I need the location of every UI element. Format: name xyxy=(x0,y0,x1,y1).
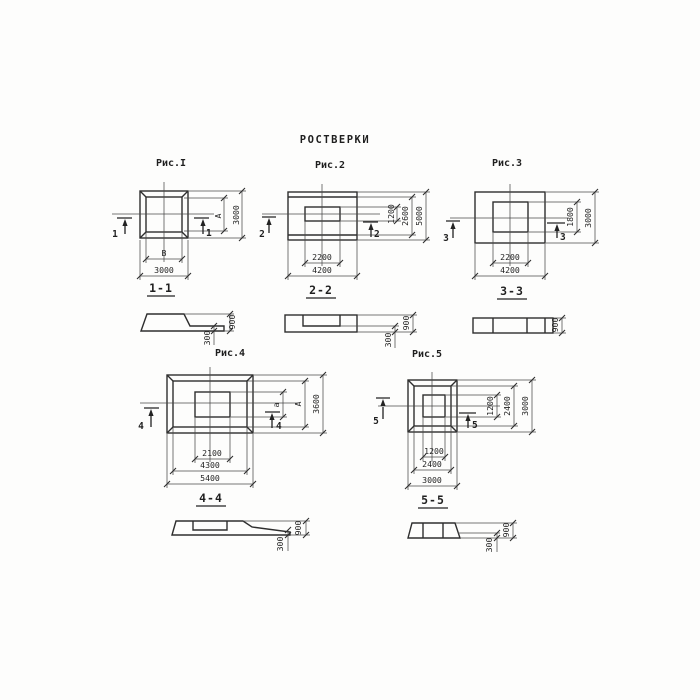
fig5-section-view: 900 300 xyxy=(408,520,517,552)
fig3-dim-inner-width: 2200 xyxy=(500,252,520,262)
fig4-dim-mid-height: A xyxy=(293,401,303,406)
fig5-cut-label-left: 5 xyxy=(373,416,379,427)
fig5-dim-inner-height: 1200 xyxy=(485,396,495,416)
fig1-dim-outer-width: 3000 xyxy=(154,265,174,275)
fig3-plan-dimensions: 1800 3000 2200 4200 xyxy=(500,207,593,275)
fig1-cut-label-inner: 1 xyxy=(206,228,212,239)
figure-4: Рис.4 4 4 a A 3600 2100 4300 5400 4-4 xyxy=(138,348,327,551)
fig2-dim-inner-height: 1200 xyxy=(386,204,396,224)
fig1-dim-outer-height: 3000 xyxy=(231,205,241,225)
fig5-dim-mid-height: 2400 xyxy=(502,396,512,416)
fig4-plan-linework xyxy=(140,367,327,488)
fig2-section-view: 900 300 xyxy=(285,312,417,348)
fig2-dim-outer-width: 4200 xyxy=(312,265,332,275)
fig3-dim-outer-width: 4200 xyxy=(500,265,520,275)
fig2-cut-label-left: 2 xyxy=(259,229,265,240)
fig2-section-label: 2-2 xyxy=(309,283,333,297)
fig1-plan-linework xyxy=(112,182,246,280)
fig1-caption: Рис.I xyxy=(156,158,186,169)
fig1-section-ledge: 300 xyxy=(202,331,212,346)
fig4-dim-outer-height: 3600 xyxy=(311,394,321,414)
fig3-caption: Рис.3 xyxy=(492,158,522,169)
sheet-title: РОСТВЕРКИ xyxy=(300,134,370,146)
fig4-dim-outer-width: 5400 xyxy=(200,473,220,483)
fig3-cut-label-left: 3 xyxy=(443,233,449,244)
fig4-section-label: 4-4 xyxy=(199,491,223,505)
fig2-cut-label-inner: 2 xyxy=(374,229,380,240)
fig1-section-label: 1-1 xyxy=(149,281,173,295)
fig4-dim-mid-width: 4300 xyxy=(200,460,220,470)
fig5-plan-linework xyxy=(378,372,536,490)
fig1-cut-marks: 1 1 xyxy=(112,218,212,240)
fig2-dim-outer-height: 5000 xyxy=(414,206,424,226)
fig1-cut-label-left: 1 xyxy=(112,229,118,240)
figure-3: Рис.3 3 3 1800 3000 2200 4200 3-3 xyxy=(443,158,599,336)
fig5-caption: Рис.5 xyxy=(412,349,442,360)
fig1-dim-inner-width: B xyxy=(162,248,167,258)
fig4-dim-inner-width: 2100 xyxy=(202,448,222,458)
fig1-dim-inner-height: A xyxy=(213,213,223,218)
fig5-section-label: 5-5 xyxy=(421,493,445,507)
fig5-cut-label-inner: 5 xyxy=(472,420,478,431)
fig2-dim-mid-height: 2600 xyxy=(400,206,410,226)
fig2-section-ledge: 300 xyxy=(383,333,393,348)
fig5-dim-mid-width: 2400 xyxy=(422,459,442,469)
fig2-caption: Рис.2 xyxy=(315,160,345,171)
fig5-section-height: 900 xyxy=(501,523,511,538)
grillage-drawing: РОСТВЕРКИ Рис.I 1 1 A 3000 B 3000 1-1 xyxy=(0,0,700,700)
fig1-section-view: 900 300 xyxy=(141,311,237,345)
figure-5: Рис.5 5 5 1200 2400 3000 1200 2400 3000 … xyxy=(373,349,536,552)
figure-2: Рис.2 2 2 1200 2600 5000 2200 4200 2-2 xyxy=(259,160,430,348)
fig2-section-height: 900 xyxy=(401,316,411,331)
fig4-caption: Рис.4 xyxy=(215,348,245,359)
fig4-section-view: 900 300 xyxy=(172,518,310,551)
fig4-cut-label-inner: 4 xyxy=(276,421,282,432)
fig4-dim-inner-height: a xyxy=(271,402,281,407)
fig3-section-view: 900 xyxy=(473,315,566,336)
fig2-plan-linework xyxy=(262,184,430,280)
fig2-dim-inner-width: 2200 xyxy=(312,252,332,262)
drawing-sheet: РОСТВЕРКИ Рис.I 1 1 A 3000 B 3000 1-1 xyxy=(0,0,700,700)
fig3-plan-linework xyxy=(450,184,599,280)
fig5-dim-outer-height: 3000 xyxy=(520,396,530,416)
fig3-section-label: 3-3 xyxy=(500,284,524,298)
fig4-plan-dimensions: a A 3600 2100 4300 5400 xyxy=(200,394,321,483)
fig5-dim-outer-width: 3000 xyxy=(422,475,442,485)
fig4-section-ledge: 300 xyxy=(275,537,285,552)
fig1-plan-dimensions: A 3000 B 3000 xyxy=(154,205,241,275)
fig5-dim-inner-width: 1200 xyxy=(424,446,444,456)
fig3-dim-outer-height: 3000 xyxy=(583,208,593,228)
figure-1: Рис.I 1 1 A 3000 B 3000 1-1 90 xyxy=(112,158,246,345)
fig3-dim-inner-height: 1800 xyxy=(565,207,575,227)
fig5-section-ledge: 300 xyxy=(484,538,494,553)
fig3-cut-label-inner: 3 xyxy=(560,232,566,243)
fig4-section-height: 900 xyxy=(293,521,303,536)
fig4-cut-label-left: 4 xyxy=(138,421,144,432)
fig1-section-height: 900 xyxy=(227,315,237,330)
fig3-section-height: 900 xyxy=(550,318,560,333)
